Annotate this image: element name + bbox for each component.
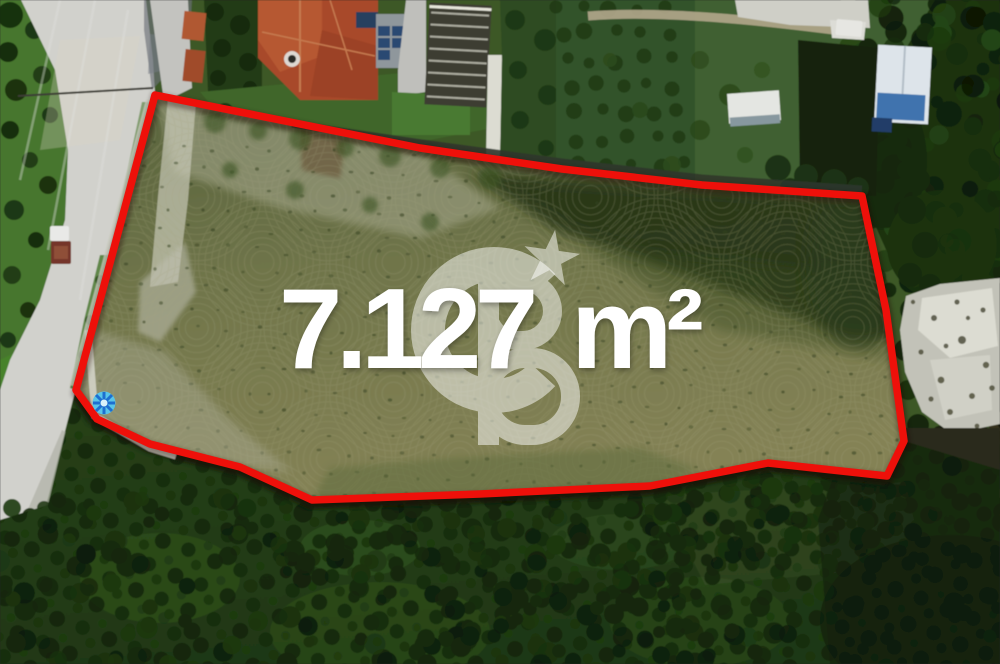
svg-text:7.127: 7.127 bbox=[279, 266, 534, 393]
svg-text:m²: m² bbox=[571, 266, 702, 393]
